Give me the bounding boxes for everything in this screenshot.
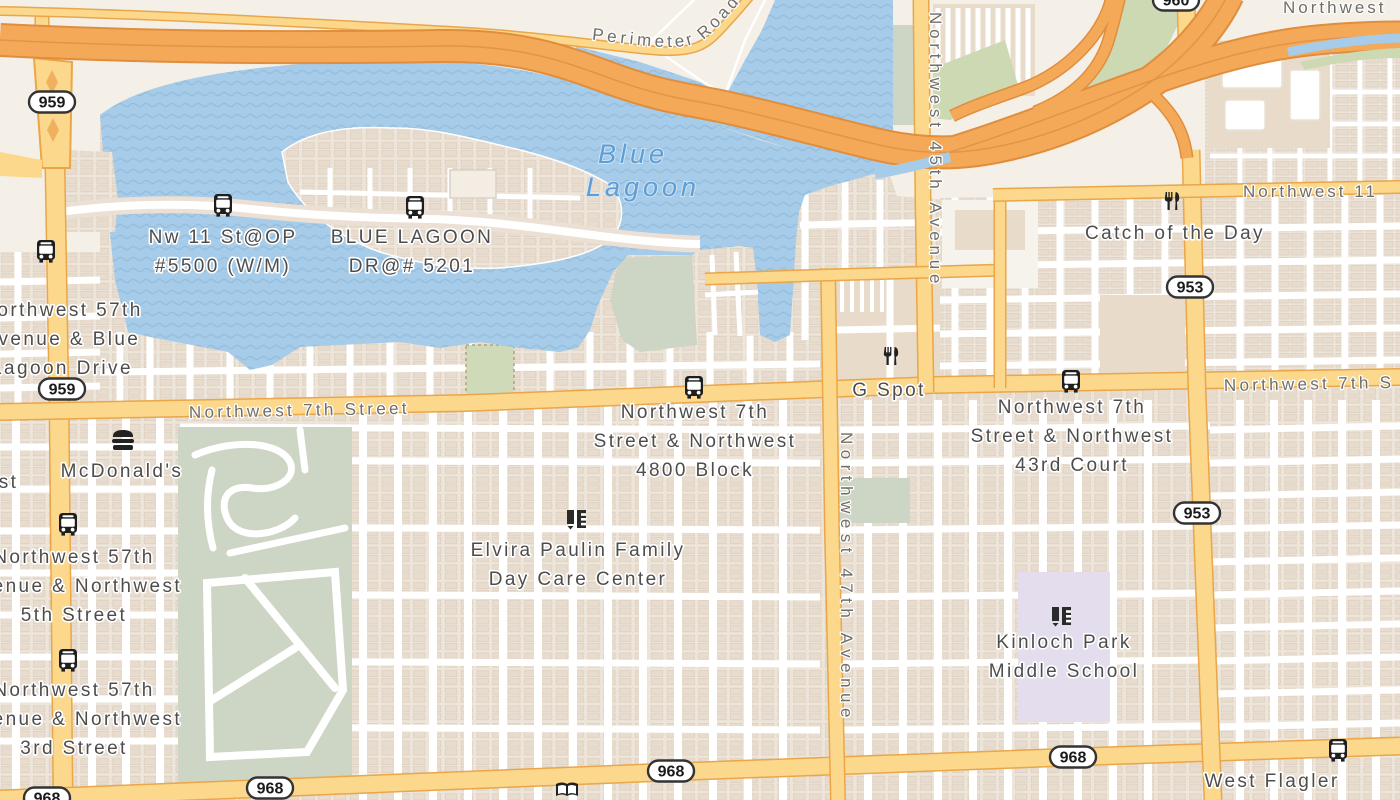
svg-text:968: 968 bbox=[658, 764, 685, 781]
svg-text:Northwest 7th: Northwest 7th bbox=[621, 402, 769, 423]
svg-text:Elvira Paulin Family: Elvira Paulin Family bbox=[471, 540, 686, 561]
svg-text:968: 968 bbox=[34, 791, 61, 800]
svg-text:Street & Northwest: Street & Northwest bbox=[971, 426, 1174, 447]
svg-text:Catch of the Day: Catch of the Day bbox=[1085, 223, 1265, 244]
svg-text:Northwest 11: Northwest 11 bbox=[1243, 182, 1378, 201]
svg-text:968: 968 bbox=[257, 781, 284, 798]
svg-text:953: 953 bbox=[1184, 506, 1211, 523]
svg-text:#5500 (W/M): #5500 (W/M) bbox=[155, 256, 291, 277]
svg-text:959: 959 bbox=[39, 95, 66, 112]
svg-text:Avenue & Northwest: Avenue & Northwest bbox=[0, 709, 182, 730]
svg-text:Lagoon Drive: Lagoon Drive bbox=[0, 358, 133, 379]
svg-text:Kinloch Park: Kinloch Park bbox=[996, 632, 1131, 653]
svg-text:West Flagler: West Flagler bbox=[1204, 771, 1339, 792]
svg-text:Nw 11 St@OP: Nw 11 St@OP bbox=[149, 227, 298, 248]
svg-text:Northwest 45th Avenue: Northwest 45th Avenue bbox=[926, 12, 945, 288]
svg-text:Northwest 47th Avenue: Northwest 47th Avenue bbox=[837, 432, 856, 723]
svg-text:43rd Court: 43rd Court bbox=[1015, 455, 1129, 476]
svg-text:959: 959 bbox=[49, 382, 76, 399]
svg-text:Middle School: Middle School bbox=[989, 661, 1140, 682]
svg-text:Blue: Blue bbox=[598, 139, 668, 169]
svg-text:Day Care Center: Day Care Center bbox=[489, 569, 668, 590]
svg-text:Northwest: Northwest bbox=[1283, 0, 1387, 17]
svg-text:G Spot: G Spot bbox=[852, 380, 926, 401]
svg-text:Street & Northwest: Street & Northwest bbox=[594, 431, 797, 452]
svg-text:968: 968 bbox=[1060, 750, 1087, 767]
svg-text:BLUE LAGOON: BLUE LAGOON bbox=[331, 227, 494, 248]
svg-text:est: est bbox=[0, 472, 18, 493]
svg-text:Northwest 57th: Northwest 57th bbox=[0, 547, 155, 568]
svg-text:3rd Street: 3rd Street bbox=[20, 738, 127, 759]
svg-text:Northwest 57th: Northwest 57th bbox=[0, 300, 143, 321]
svg-text:McDonald's: McDonald's bbox=[61, 461, 184, 482]
svg-text:Lagoon: Lagoon bbox=[586, 172, 700, 202]
svg-text:4800 Block: 4800 Block bbox=[636, 460, 754, 481]
svg-text:DR@# 5201: DR@# 5201 bbox=[349, 256, 475, 277]
svg-text:Northwest 7th: Northwest 7th bbox=[998, 397, 1146, 418]
svg-text:Northwest 57th: Northwest 57th bbox=[0, 680, 155, 701]
svg-text:Northwest 7th S: Northwest 7th S bbox=[1224, 373, 1395, 395]
svg-text:953: 953 bbox=[1177, 280, 1204, 297]
svg-text:960: 960 bbox=[1163, 0, 1190, 10]
svg-text:Avenue & Northwest: Avenue & Northwest bbox=[0, 576, 182, 597]
svg-text:Avenue & Blue: Avenue & Blue bbox=[0, 329, 140, 350]
svg-text:5th Street: 5th Street bbox=[21, 605, 127, 626]
